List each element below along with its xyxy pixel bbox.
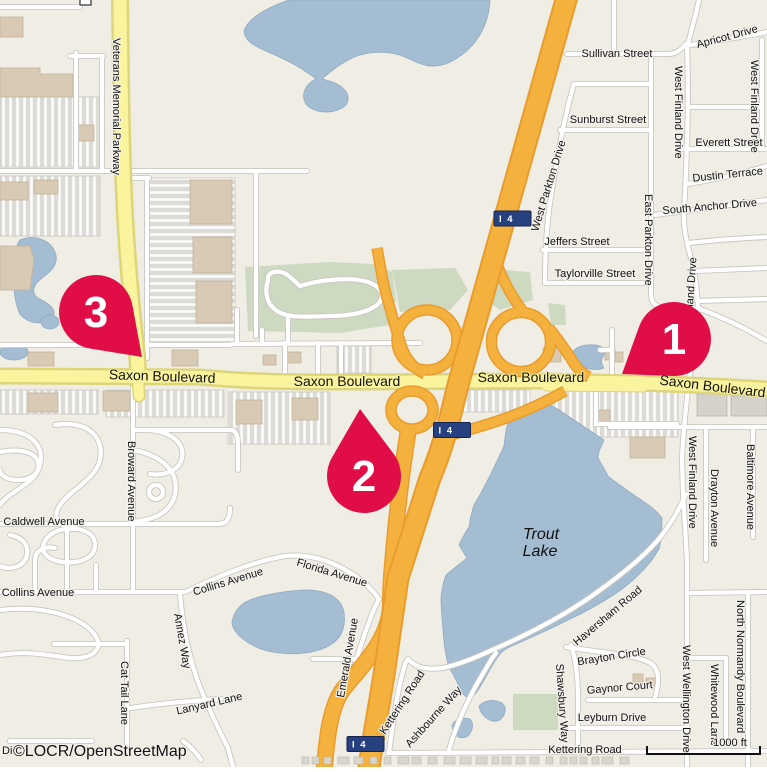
svg-text:Caldwell Avenue: Caldwell Avenue <box>3 516 84 528</box>
svg-text:I 4: I 4 <box>499 214 514 225</box>
svg-text:North Normandy Boulevard: North Normandy Boulevard <box>734 600 746 733</box>
svg-text:Jeffers Street: Jeffers Street <box>544 236 609 248</box>
svg-text:Saxon Boulevard: Saxon Boulevard <box>294 373 401 389</box>
svg-text:West Finland Drive: West Finland Drive <box>672 66 684 159</box>
svg-text:Trout: Trout <box>523 526 560 543</box>
svg-text:I 4: I 4 <box>352 740 367 751</box>
svg-text:West Wellington Drive: West Wellington Drive <box>680 645 692 753</box>
svg-text:1: 1 <box>662 315 686 364</box>
svg-text:East Parkton Drive: East Parkton Drive <box>642 194 654 286</box>
svg-text:West Finland Drive: West Finland Drive <box>686 436 698 529</box>
svg-text:Sullivan Street: Sullivan Street <box>582 48 653 60</box>
svg-text:I 4: I 4 <box>438 426 453 437</box>
svg-text:Saxon Boulevard: Saxon Boulevard <box>478 369 585 385</box>
svg-text:1000 ft: 1000 ft <box>713 737 747 749</box>
svg-text:Broward Avenue: Broward Avenue <box>125 441 137 522</box>
svg-text:2: 2 <box>352 452 376 501</box>
svg-text:Whitewood Lane: Whitewood Lane <box>708 664 720 746</box>
svg-text:Di: Di <box>2 745 12 757</box>
svg-text:Leyburn Drive: Leyburn Drive <box>578 712 646 724</box>
svg-text:Lake: Lake <box>523 543 558 560</box>
svg-text:Sunburst Street: Sunburst Street <box>570 114 646 126</box>
svg-text:©LOCR/OpenStreetMap: ©LOCR/OpenStreetMap <box>13 743 187 760</box>
svg-text:Kettering Road: Kettering Road <box>548 744 621 756</box>
svg-text:Baltimore Avenue: Baltimore Avenue <box>744 444 756 530</box>
svg-text:3: 3 <box>84 288 108 337</box>
svg-text:Drayton Avenue: Drayton Avenue <box>708 469 720 547</box>
svg-text:Veterans Memorial Parkway: Veterans Memorial Parkway <box>110 38 122 175</box>
svg-text:Collins Avenue: Collins Avenue <box>2 587 75 599</box>
svg-text:Cat Tail Lane: Cat Tail Lane <box>118 661 130 725</box>
svg-text:Taylorville Street: Taylorville Street <box>555 268 636 280</box>
svg-text:Everett Street: Everett Street <box>695 137 762 149</box>
